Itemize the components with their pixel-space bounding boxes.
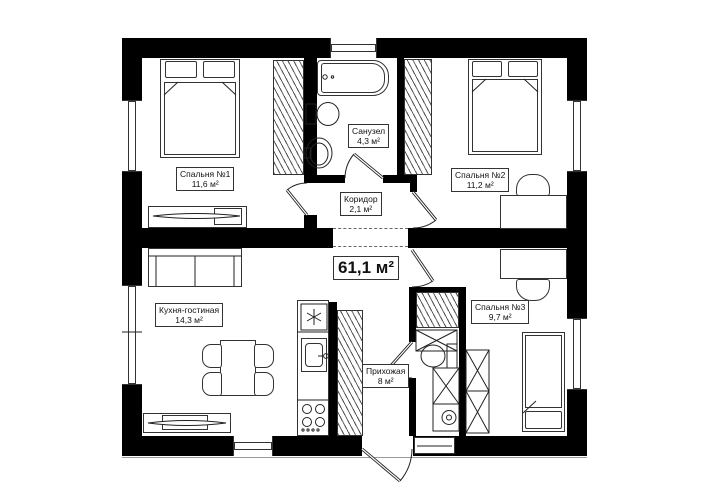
wall-middle-right (408, 228, 567, 248)
wardrobe-icon (404, 59, 432, 175)
closet-icon (416, 292, 459, 328)
pillow-icon (472, 61, 502, 77)
wardrobe-x-icon (466, 350, 489, 433)
door-entrance (362, 449, 412, 481)
window-frame (128, 101, 136, 171)
bathtub-inner (321, 63, 385, 93)
tv-box (162, 415, 208, 430)
window-frame (234, 442, 272, 450)
window-bedroom3 (567, 318, 587, 390)
door-vestibule (412, 250, 433, 287)
total-area-value: 61,1 м² (338, 258, 394, 278)
wardrobe-icon (273, 60, 304, 175)
floor-plan: Спальня №1 11,6 м² Санузел 4,3 м² Спальн… (0, 0, 710, 502)
toilet-icon (421, 344, 457, 368)
room-area: 2,1 м² (344, 204, 378, 214)
washing-machine-icon (433, 404, 459, 431)
chair-icon (254, 344, 274, 368)
wall-middle-left (142, 228, 333, 248)
room-name: Кухня-гостиная (159, 305, 219, 315)
window-bathroom (330, 38, 377, 58)
pillow-icon (525, 411, 562, 429)
pillow-icon (165, 61, 197, 78)
dining-table-icon (220, 340, 256, 396)
wall-bedroom1-bathroom (304, 58, 317, 177)
door-bathroom (345, 154, 383, 178)
window-frame (573, 319, 581, 389)
chair-icon (202, 372, 222, 396)
desk-icon (500, 195, 567, 229)
room-area: 9,7 м² (475, 312, 525, 322)
room-area: 14,3 м² (159, 315, 219, 325)
wall-hallway-wc-lower (409, 378, 416, 436)
window-frame (128, 286, 136, 384)
wall-hallway-wc-upper (409, 287, 416, 342)
wall-bathroom-south-left (304, 175, 345, 183)
wall-wc-bedroom3 (459, 287, 466, 436)
entrance-step (414, 437, 455, 454)
window-frame (573, 101, 581, 171)
room-label-bedroom3: Спальня №3 9,7 м² (471, 300, 529, 324)
room-area: 11,2 м² (455, 180, 505, 190)
room-label-hallway: Прихожая 8 м² (362, 364, 409, 388)
room-area: 8 м² (366, 376, 405, 386)
room-name: Спальня №1 (180, 169, 230, 179)
room-label-corridor: Коридор 2,1 м² (340, 192, 382, 216)
room-name: Санузел (352, 126, 385, 136)
room-label-bedroom2: Спальня №2 11,2 м² (451, 168, 509, 192)
chair-icon (516, 174, 550, 196)
chair-icon (254, 372, 274, 396)
pillow-icon (203, 61, 235, 78)
bed-mattress (525, 335, 562, 408)
room-area: 11,6 м² (180, 179, 230, 189)
room-label-kitchen-living: Кухня-гостиная 14,3 м² (155, 303, 223, 327)
wardrobe-icon (337, 310, 363, 436)
pillow-icon (508, 61, 538, 77)
window-kitchen-bottom (233, 436, 273, 456)
tv-box (214, 208, 242, 225)
room-area: 4,3 м² (352, 136, 385, 146)
wall-corridor-west-post (304, 215, 317, 228)
wall-bathroom-closet (397, 58, 404, 175)
room-name: Коридор (344, 194, 378, 204)
window-frame (331, 44, 376, 52)
sink-basin (305, 343, 323, 367)
window-bedroom2 (567, 100, 587, 172)
room-name: Спальня №2 (455, 170, 505, 180)
window-bedroom1 (122, 100, 142, 172)
open-passage-dashed-top (333, 228, 408, 229)
total-area-label: 61,1 м² (333, 256, 399, 280)
bed-mattress (164, 82, 236, 155)
wall-kitchen-hallway (329, 302, 337, 436)
sofa-icon (148, 248, 242, 287)
room-label-bathroom: Санузел 4,3 м² (348, 124, 389, 148)
open-passage-dashed-bottom (333, 246, 408, 247)
door-bedroom2 (413, 192, 436, 228)
ground-line (122, 457, 587, 458)
chair-icon (516, 279, 550, 301)
window-kitchen-left (122, 285, 142, 385)
room-name: Спальня №3 (475, 302, 525, 312)
bed-mattress (472, 79, 538, 152)
desk-icon (500, 249, 567, 279)
chair-icon (202, 344, 222, 368)
door-bedroom1 (287, 183, 307, 215)
cabinet-icon (433, 368, 459, 404)
room-name: Прихожая (366, 366, 405, 376)
wall-bedroom2-west-post (410, 175, 417, 192)
room-label-bedroom1: Спальня №1 11,6 м² (176, 167, 234, 191)
shelf-icon (416, 330, 457, 351)
